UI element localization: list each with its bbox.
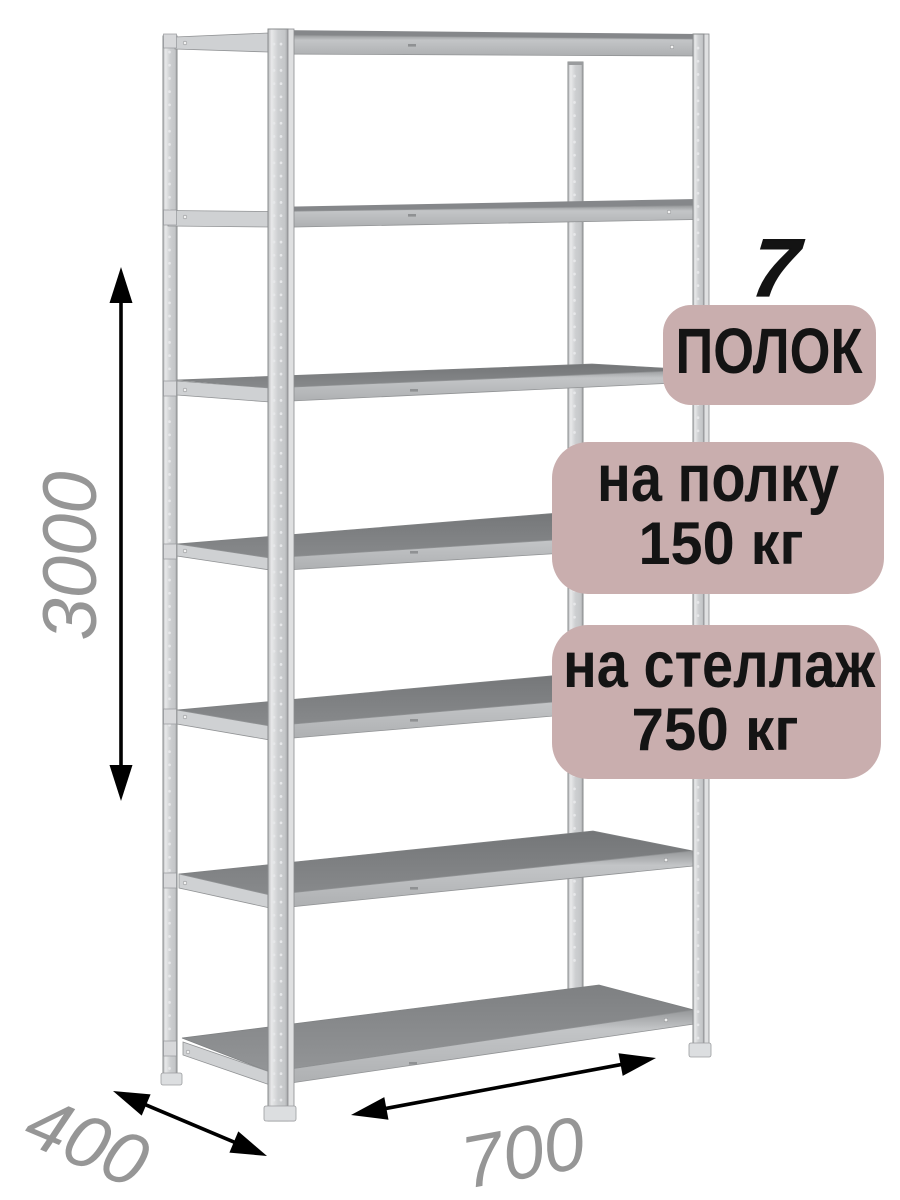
svg-text:ПОЛОК: ПОЛОК: [676, 315, 864, 387]
svg-text:3000: 3000: [28, 471, 113, 640]
svg-text:750 кг: 750 кг: [632, 696, 799, 763]
svg-text:на полку: на полку: [597, 441, 839, 516]
svg-text:на стеллаж: на стеллаж: [563, 628, 876, 701]
svg-text:150 кг: 150 кг: [639, 510, 804, 577]
